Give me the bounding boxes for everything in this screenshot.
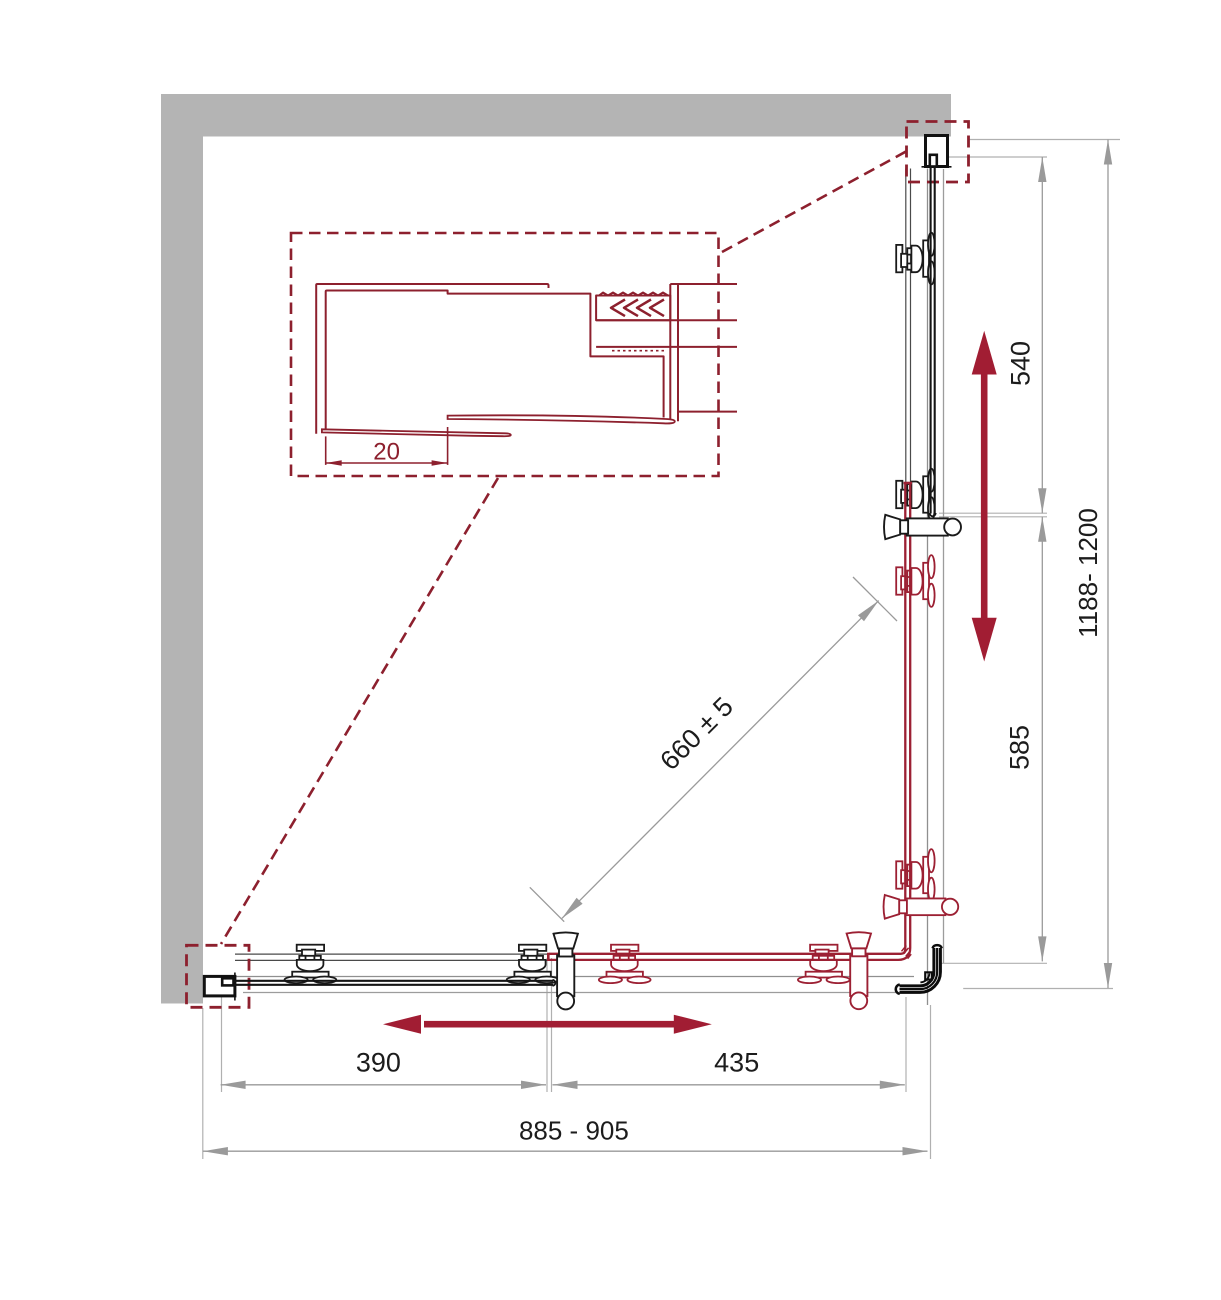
svg-text:435: 435: [714, 1048, 759, 1078]
svg-text:20: 20: [373, 439, 400, 466]
svg-text:885 - 905: 885 - 905: [519, 1116, 629, 1146]
svg-text:585: 585: [1005, 725, 1035, 770]
svg-text:1188- 1200: 1188- 1200: [1073, 508, 1103, 638]
svg-text:540: 540: [1006, 341, 1036, 386]
svg-text:390: 390: [356, 1048, 401, 1078]
svg-text:660 ± 5: 660 ± 5: [654, 691, 739, 776]
